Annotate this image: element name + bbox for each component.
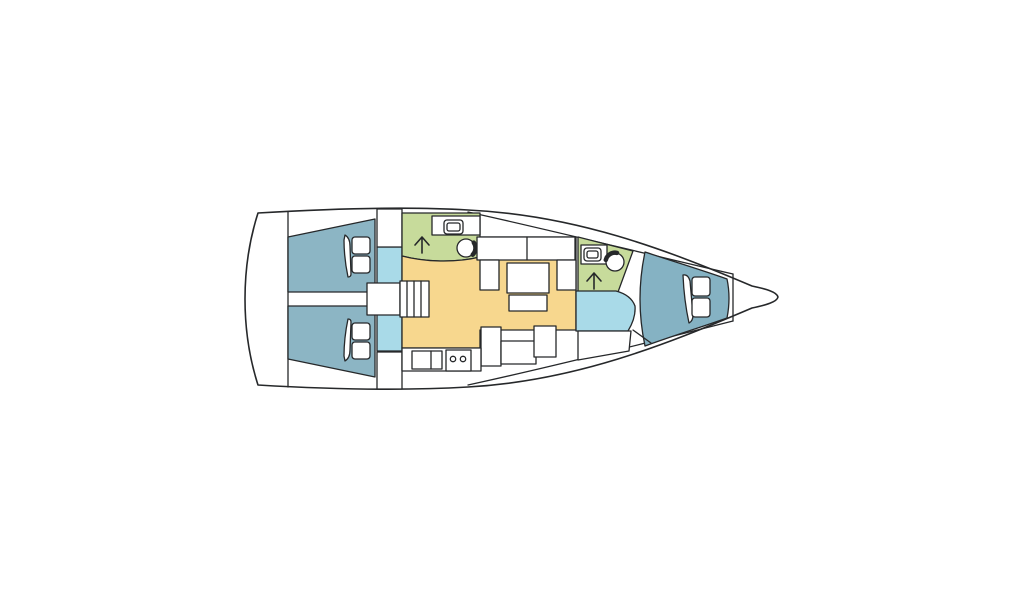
- settee-left-seat: [480, 260, 499, 290]
- stairs-landing: [367, 283, 400, 315]
- saloon-table-leaf: [509, 295, 547, 311]
- yacht-floor-plan: [0, 0, 1024, 600]
- aft-port-double-berth-icon: [344, 235, 370, 277]
- pillow: [692, 298, 710, 317]
- plan-root-group: [245, 208, 778, 389]
- forward-passage: [576, 291, 635, 331]
- nav-seat: [534, 326, 556, 357]
- pillow: [352, 323, 370, 340]
- saloon-table-icon: [507, 263, 549, 293]
- locker-port: [377, 209, 402, 247]
- galley-sink-icon: [412, 351, 442, 369]
- yacht-floor-plan-canvas: [0, 0, 1024, 600]
- pillow: [352, 237, 370, 254]
- settee-right-seat: [557, 260, 576, 290]
- settee-forward-bench: [477, 237, 575, 260]
- pillow: [692, 277, 710, 296]
- galley-unit: [402, 348, 481, 371]
- pillow: [352, 256, 370, 273]
- locker-starboard: [377, 352, 402, 389]
- stove-two-burner-icon: [446, 350, 471, 371]
- forward-double-berth-icon: [683, 275, 710, 323]
- pillow: [352, 342, 370, 359]
- aft-settee-left-seat: [481, 327, 501, 366]
- aft-starboard-double-berth-icon: [344, 319, 370, 361]
- companionway-stairs-icon: [367, 281, 429, 317]
- aft-settee-bench: [501, 341, 536, 364]
